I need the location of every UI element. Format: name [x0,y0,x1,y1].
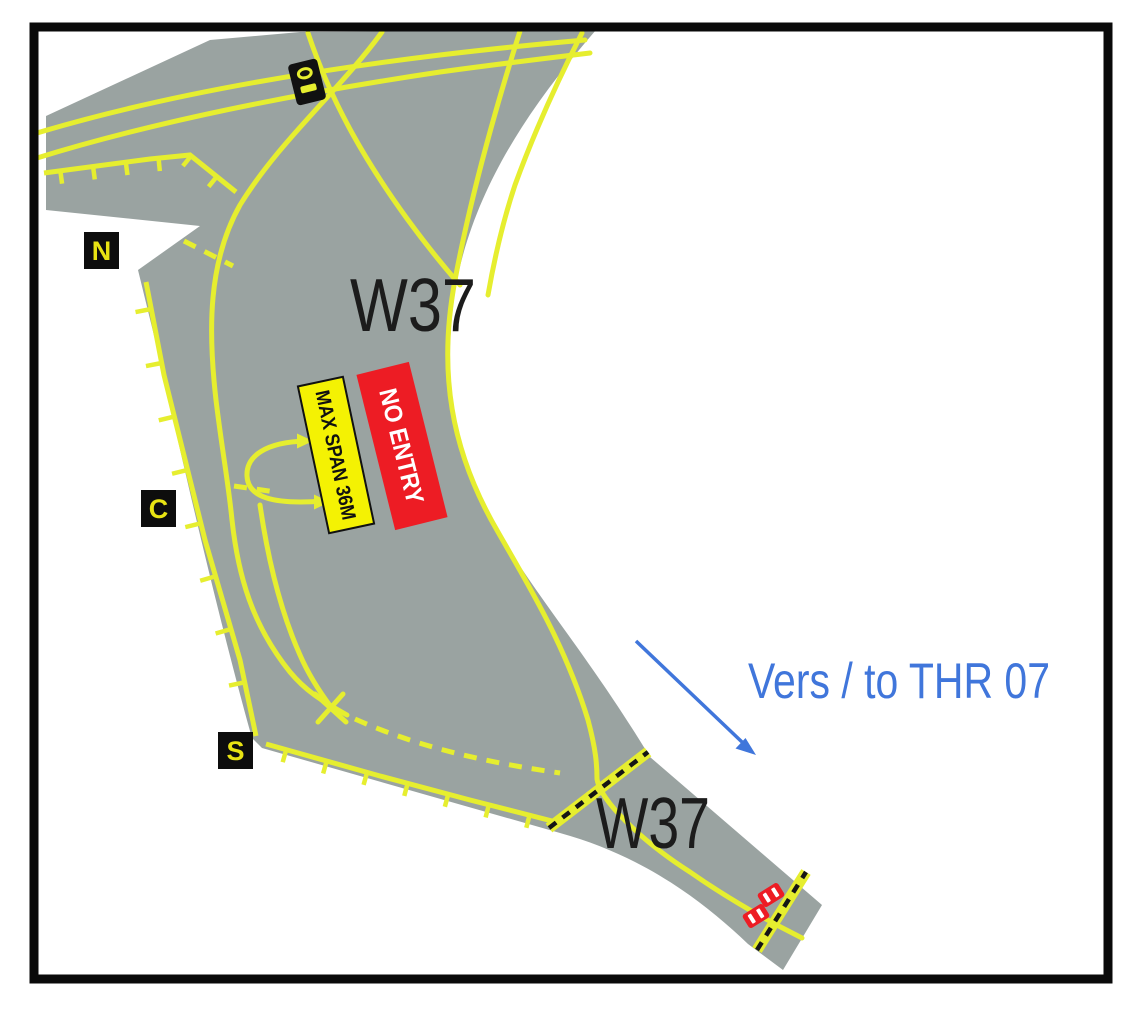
boundary-tick [172,470,188,474]
boundary-tick [146,363,162,366]
airport-taxiway-chart: W37 W37 MAX SPAN 36M NO ENTRY N C S Vers… [0,0,1134,1010]
boundary-tick [136,309,152,312]
taxiway-label-top: W37 [350,263,476,347]
stand-marker-north: N [84,232,119,269]
boundary-tick [126,162,128,175]
chart-canvas: W37 W37 MAX SPAN 36M NO ENTRY N C S Vers… [0,0,1134,1010]
boundary-tick [526,815,529,828]
boundary-tick [60,171,62,184]
stand-marker-south-letter: S [226,736,244,766]
stand-marker-center: C [141,490,176,527]
stand-marker-center-letter: C [149,494,169,524]
direction-annotation: Vers / to THR 07 [636,641,1050,755]
boundary-tick [486,805,489,818]
stand-marker-south: S [218,732,253,769]
direction-note-text: Vers / to THR 07 [748,653,1050,709]
taxiway-label-bottom: W37 [596,784,710,864]
stand-marker-north-letter: N [92,236,112,266]
boundary-tick [93,167,95,180]
boundary-tick [159,417,175,421]
boundary-tick [159,158,160,171]
